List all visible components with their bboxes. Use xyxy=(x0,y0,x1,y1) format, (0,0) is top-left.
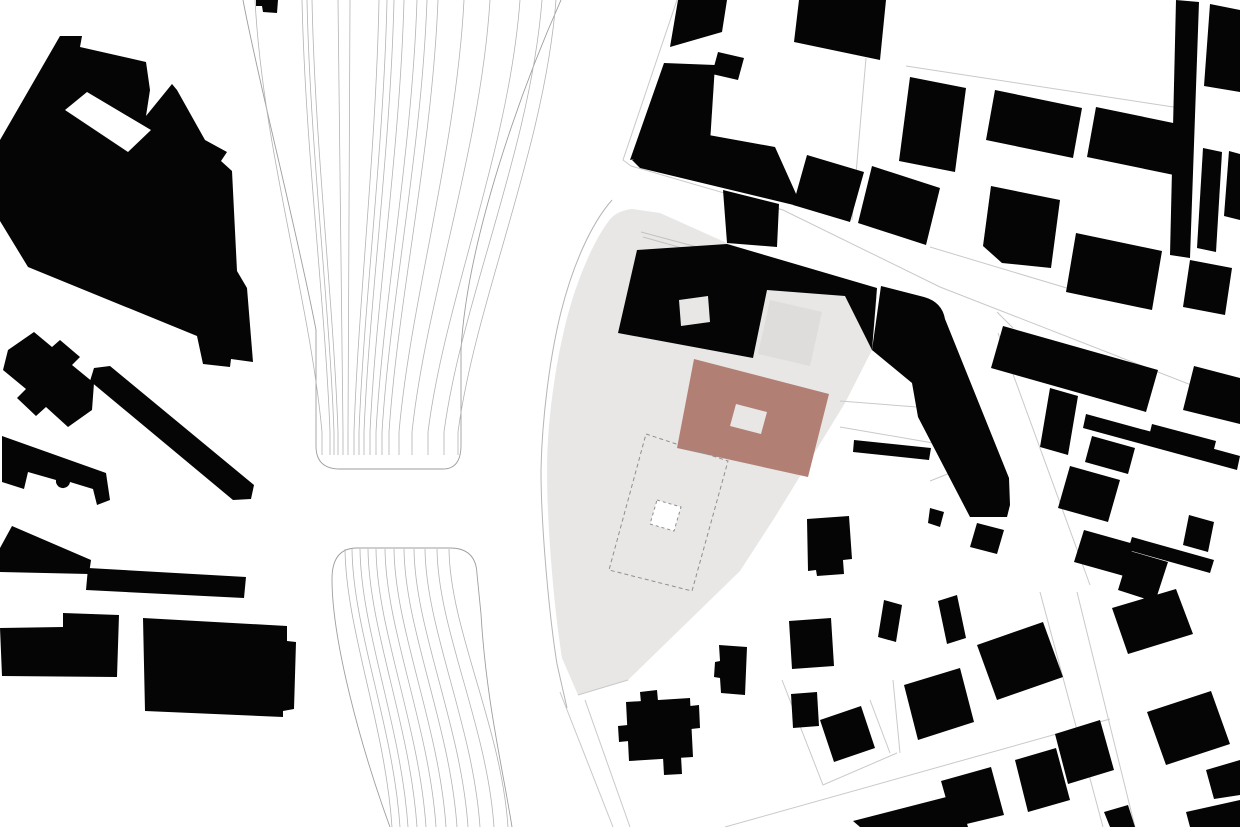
building-footprint xyxy=(899,77,966,172)
site-plan-map xyxy=(0,0,1240,827)
building-footprint xyxy=(626,698,693,761)
building-footprint xyxy=(1204,4,1240,92)
building-footprint xyxy=(640,690,658,703)
building-footprint xyxy=(789,618,834,669)
building-footprint xyxy=(791,692,819,728)
building-footprint xyxy=(143,618,296,717)
building-footprint xyxy=(618,725,629,742)
building-footprint xyxy=(983,186,1060,268)
building-footprint xyxy=(1183,260,1232,315)
site-plan-page xyxy=(0,0,1240,827)
building-footprint xyxy=(663,756,682,775)
building-footprint xyxy=(690,705,700,729)
